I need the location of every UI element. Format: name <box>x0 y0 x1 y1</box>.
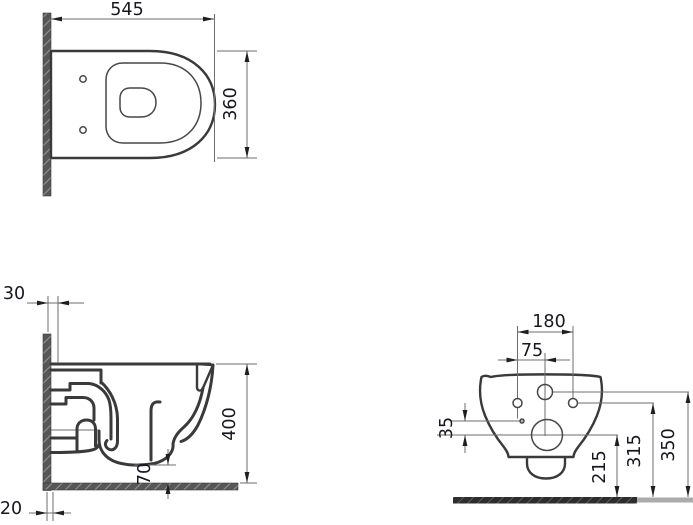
wall-section-side <box>43 334 51 491</box>
body-outline-rear <box>480 374 602 457</box>
mounting-channel-step <box>51 398 94 421</box>
rim-underside-line <box>51 370 101 383</box>
dimension-inlet-to-outlet-drop: 35 <box>437 403 465 453</box>
dim-label-75: 75 <box>521 341 543 361</box>
dimension-fixing-hole-spacing: 180 <box>518 312 574 332</box>
dim-label-35: 35 <box>437 417 457 439</box>
dimension-center-to-fixing-hole: 75 <box>498 341 570 361</box>
toilet-dimension-drawing: 545 360 30 <box>0 0 693 525</box>
outlet-bottom-line <box>51 444 99 453</box>
dim-label-360: 360 <box>221 87 241 120</box>
dim-label-70: 70 <box>135 463 155 485</box>
dimension-outlet-height: 215 <box>590 435 617 497</box>
trap-weir-outline <box>77 420 96 450</box>
dim-label-30: 30 <box>3 284 25 304</box>
dimension-floor-strip: 20 <box>0 492 71 521</box>
dim-label-215: 215 <box>590 450 610 483</box>
flush-channel-wall <box>51 384 111 440</box>
dim-label-180: 180 <box>532 312 565 332</box>
dim-label-400: 400 <box>220 407 240 440</box>
dimension-inlet-height: 350 <box>659 392 688 497</box>
floor-section-rear-light <box>637 498 693 503</box>
top-view: 545 360 <box>43 0 257 196</box>
bowl-outline-plan <box>51 51 215 158</box>
dimension-fixing-hole-height: 315 <box>625 403 653 497</box>
dimension-overall-width: 360 <box>217 51 257 158</box>
dim-label-545: 545 <box>110 0 143 20</box>
dimension-rim-height: 400 <box>216 364 257 483</box>
outlet-spigot <box>527 457 565 479</box>
rear-view: 180 75 35 215 315 350 <box>437 312 693 504</box>
trap-inlet-wall <box>151 402 160 460</box>
side-section-view: 30 20 400 70 <box>0 284 257 521</box>
dim-label-315: 315 <box>625 434 645 467</box>
dim-label-350: 350 <box>659 428 679 461</box>
floor-section-rear <box>453 497 637 504</box>
inner-bowl-curve <box>173 388 203 444</box>
technical-drawing-page: 545 360 30 <box>0 0 693 525</box>
dim-label-20: 20 <box>0 499 22 519</box>
